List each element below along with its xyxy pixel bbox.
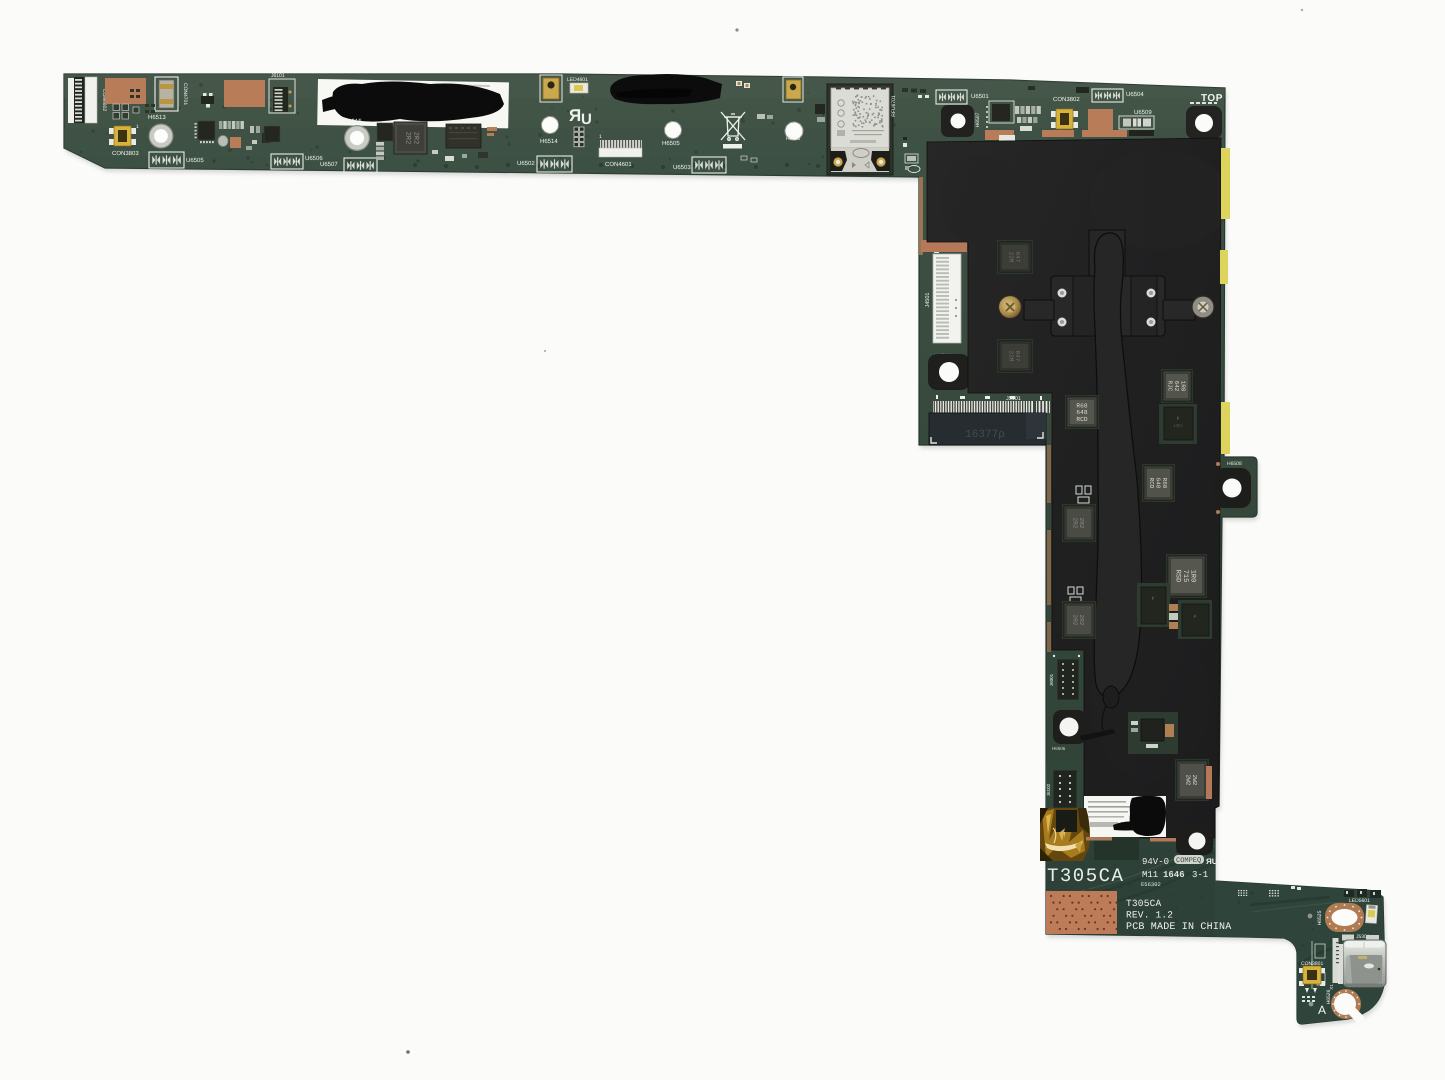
svg-text:J6101: J6101 <box>271 73 285 79</box>
svg-text:J6001: J6001 <box>1049 673 1054 686</box>
svg-text:2R2: 2R2 <box>1072 518 1079 529</box>
svg-text:H6514: H6514 <box>540 138 558 145</box>
svg-text:2R2: 2R2 <box>1072 615 1079 626</box>
svg-text:LED4601: LED4601 <box>567 77 588 83</box>
svg-text:U6507: U6507 <box>320 161 338 168</box>
svg-text:H6513: H6513 <box>148 114 166 121</box>
svg-text:U6503: U6503 <box>673 164 691 171</box>
svg-text:H6511: H6511 <box>786 136 801 142</box>
svg-text:M11: M11 <box>1142 870 1158 880</box>
svg-text:ЯU: ЯU <box>1206 857 1218 866</box>
svg-text:94V-0: 94V-0 <box>1142 857 1169 867</box>
svg-text:CON3802: CON3802 <box>1053 96 1080 103</box>
svg-text:H6506: H6506 <box>1052 746 1066 751</box>
svg-text:H6525: H6525 <box>1317 910 1323 925</box>
svg-text:22M: 22M <box>1008 351 1015 362</box>
svg-text:H6508: H6508 <box>1227 461 1242 467</box>
svg-text:RFU6701: RFU6701 <box>891 95 897 117</box>
svg-text:1: 1 <box>136 124 139 130</box>
svg-text:H6507: H6507 <box>975 112 981 127</box>
svg-text:U6506: U6506 <box>305 155 323 162</box>
svg-text:X1: X1 <box>1329 984 1334 990</box>
svg-text:CON4701: CON4701 <box>182 83 188 105</box>
svg-text:RJC: RJC <box>1166 381 1173 392</box>
svg-text:F: F <box>1177 416 1180 421</box>
svg-text:2W2: 2W2 <box>1185 775 1192 786</box>
svg-text:22M: 22M <box>1008 252 1015 263</box>
svg-text:LED5601: LED5601 <box>1349 898 1370 904</box>
svg-text:1: 1 <box>599 134 602 140</box>
svg-text:H6505: H6505 <box>662 140 680 147</box>
svg-text:U6505: U6505 <box>186 157 204 164</box>
svg-text:J6102: J6102 <box>1046 783 1051 796</box>
svg-text:CON4601: CON4601 <box>605 161 632 168</box>
svg-text:2R2: 2R2 <box>404 132 412 145</box>
svg-text:2R2: 2R2 <box>412 132 420 145</box>
svg-text:U6509: U6509 <box>1134 109 1152 116</box>
svg-text:U6502: U6502 <box>517 160 535 167</box>
svg-text:T305CA: T305CA <box>1126 898 1162 909</box>
svg-text:13F2: 13F2 <box>1173 423 1183 428</box>
svg-text:H6526: H6526 <box>1326 989 1332 1004</box>
svg-text:RSD: RSD <box>1174 570 1182 583</box>
svg-text:H6515: H6515 <box>344 118 362 125</box>
svg-text:F: F <box>1194 614 1197 619</box>
svg-text:1646: 1646 <box>1163 870 1185 880</box>
svg-text:COMPEQ: COMPEQ <box>1176 857 1201 865</box>
svg-text:F: F <box>1152 596 1155 601</box>
svg-text:T305CA: T305CA <box>1047 865 1124 887</box>
svg-text:U6501: U6501 <box>971 93 989 100</box>
svg-text:PCB MADE IN CHINA: PCB MADE IN CHINA <box>1126 922 1231 933</box>
svg-text:CON3803: CON3803 <box>112 150 139 157</box>
svg-text:3-1: 3-1 <box>1192 870 1208 880</box>
svg-text:U: U <box>581 111 592 128</box>
svg-text:Я: Я <box>569 106 581 125</box>
svg-text:RCD: RCD <box>1148 478 1155 489</box>
svg-text:J4501: J4501 <box>925 293 931 308</box>
svg-text:16377ρ: 16377ρ <box>965 429 1005 441</box>
svg-text:E56302: E56302 <box>1141 881 1161 888</box>
svg-text:U6504: U6504 <box>1126 91 1144 98</box>
svg-text:RCD: RCD <box>1076 416 1087 423</box>
svg-text:REV. 1.2: REV. 1.2 <box>1126 910 1173 921</box>
svg-text:A: A <box>1318 1003 1326 1017</box>
